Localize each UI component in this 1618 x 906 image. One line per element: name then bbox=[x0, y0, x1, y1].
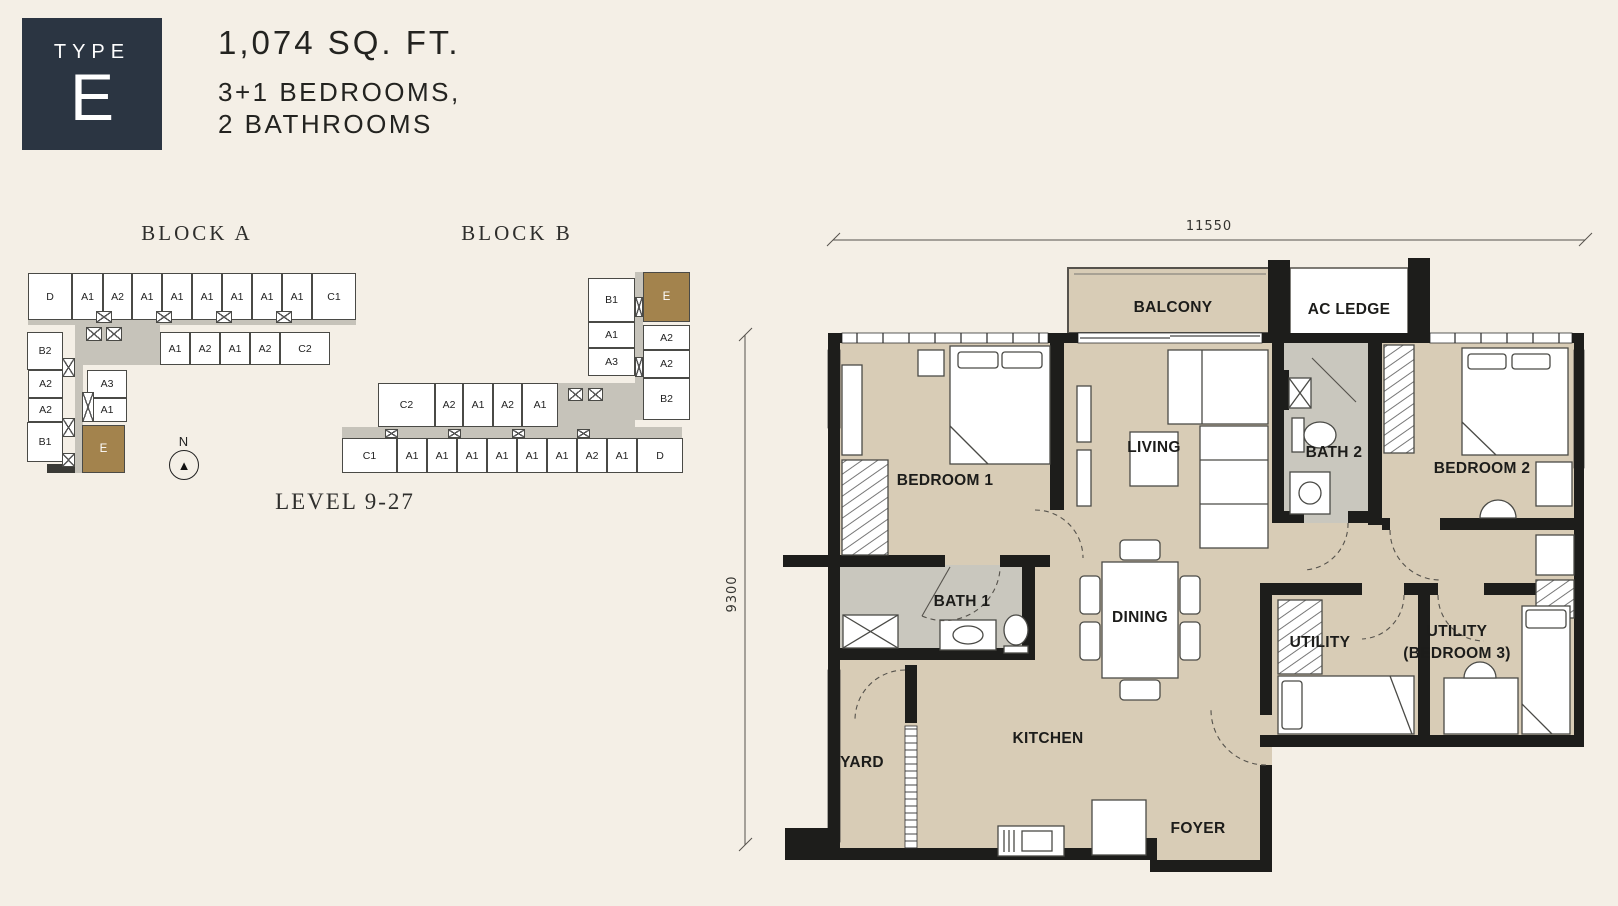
lift-shaft-icon bbox=[216, 311, 232, 323]
floor-plan: 11550 9300 BALCONY AC LEDGE LIVING BATH … bbox=[700, 210, 1618, 900]
unit-cell-b1: B1 bbox=[588, 278, 635, 322]
unit-cell-a1: A1 bbox=[220, 332, 250, 365]
unit-cell-d: D bbox=[637, 438, 683, 473]
lift-shaft-icon bbox=[62, 418, 75, 437]
unit-rooms: 3+1 BEDROOMS, 2 BATHROOMS bbox=[218, 76, 461, 140]
unit-cell-c2: C2 bbox=[378, 383, 435, 427]
label-ac-ledge: AC LEDGE bbox=[1308, 301, 1391, 318]
label-kitchen: KITCHEN bbox=[1013, 730, 1084, 747]
label-bath2: BATH 2 bbox=[1306, 444, 1363, 461]
unit-cell-a2: A2 bbox=[28, 370, 63, 398]
unit-cell-a1: A1 bbox=[457, 438, 487, 473]
type-badge: TYPE E bbox=[22, 18, 162, 150]
label-balcony: BALCONY bbox=[1134, 299, 1213, 316]
unit-cell-a1: A1 bbox=[160, 332, 190, 365]
lift-shaft-icon bbox=[385, 429, 398, 438]
type-badge-letter: E bbox=[70, 66, 114, 128]
unit-cell-a1: A1 bbox=[607, 438, 637, 473]
lift-shaft-icon bbox=[448, 429, 461, 438]
unit-cell-a2: A2 bbox=[190, 332, 220, 365]
label-dining: DINING bbox=[1112, 609, 1168, 626]
lift-shaft-icon bbox=[512, 429, 525, 438]
unit-cell-e-highlight: E bbox=[82, 425, 125, 473]
level-label: LEVEL 9-27 bbox=[245, 489, 445, 515]
unit-cell-a2: A2 bbox=[577, 438, 607, 473]
unit-cell-a2: A2 bbox=[643, 350, 690, 378]
lift-shaft-icon bbox=[577, 429, 590, 438]
unit-cell-d: D bbox=[28, 273, 72, 320]
dim-height-label: 9300 bbox=[725, 575, 740, 612]
unit-cell-a1: A1 bbox=[427, 438, 457, 473]
north-label: N bbox=[166, 434, 202, 449]
unit-cell-e-highlight: E bbox=[643, 272, 690, 322]
label-utility3-line1: UTILITY bbox=[1427, 623, 1488, 640]
label-yard: YARD bbox=[840, 754, 884, 771]
unit-bedrooms: 3+1 BEDROOMS, bbox=[218, 76, 461, 108]
lift-shaft-icon bbox=[276, 311, 292, 323]
floorplan-sheet: { "header": { "type_label": "TYPE", "typ… bbox=[0, 0, 1618, 906]
lift-shaft-icon bbox=[62, 453, 75, 467]
unit-cell-a2: A2 bbox=[643, 325, 690, 350]
label-utility3-line2: (BEDROOM 3) bbox=[1403, 645, 1511, 662]
unit-cell-a1: A1 bbox=[463, 383, 493, 427]
label-bedroom1: BEDROOM 1 bbox=[897, 472, 994, 489]
lift-shaft-icon bbox=[156, 311, 172, 323]
unit-cell-a1: A1 bbox=[487, 438, 517, 473]
unit-cell-b2: B2 bbox=[643, 378, 690, 420]
lift-shaft-icon bbox=[86, 327, 102, 341]
lift-shaft-icon bbox=[588, 388, 603, 401]
unit-bathrooms: 2 BATHROOMS bbox=[218, 108, 461, 140]
label-living: LIVING bbox=[1127, 439, 1180, 456]
block-a-title: BLOCK A bbox=[97, 221, 297, 246]
block-b-title: BLOCK B bbox=[417, 221, 617, 246]
label-foyer: FOYER bbox=[1171, 820, 1226, 837]
lift-shaft-icon bbox=[635, 357, 643, 377]
label-bath1: BATH 1 bbox=[934, 593, 991, 610]
block-b-plan: B1EA1A2A3A2B2C2A2A1A2A1C1A1A1A1A1A1A1A2A… bbox=[330, 252, 702, 478]
label-utility: UTILITY bbox=[1290, 634, 1351, 651]
unit-cell-a2: A2 bbox=[435, 383, 463, 427]
unit-cell-a2: A2 bbox=[28, 398, 63, 422]
lift-shaft-icon bbox=[568, 388, 583, 401]
lift-shaft-icon bbox=[82, 392, 94, 422]
unit-cell-a2: A2 bbox=[493, 383, 522, 427]
unit-cell-a3: A3 bbox=[588, 348, 635, 376]
unit-area: 1,074 SQ. FT. bbox=[218, 24, 461, 62]
lift-shaft-icon bbox=[635, 297, 643, 317]
lift-shaft-icon bbox=[62, 358, 75, 377]
unit-cell-a1: A1 bbox=[517, 438, 547, 473]
lift-shaft-icon bbox=[96, 311, 112, 323]
yard-glass-panel bbox=[905, 726, 917, 848]
dim-width-label: 11550 bbox=[1186, 219, 1232, 234]
unit-cell-a1: A1 bbox=[588, 322, 635, 348]
unit-cell-b2: B2 bbox=[27, 332, 63, 370]
unit-cell-a2: A2 bbox=[250, 332, 280, 365]
unit-cell-c1: C1 bbox=[342, 438, 397, 473]
corridor bbox=[635, 272, 643, 420]
unit-cell-a1: A1 bbox=[522, 383, 558, 427]
unit-cell-a1: A1 bbox=[547, 438, 577, 473]
unit-cell-a1: A1 bbox=[397, 438, 427, 473]
unit-cell-c2: C2 bbox=[280, 332, 330, 365]
north-compass: N ▲ bbox=[166, 434, 202, 480]
north-arrow-icon: ▲ bbox=[169, 450, 199, 480]
unit-cell-b1: B1 bbox=[27, 422, 63, 462]
label-bedroom2: BEDROOM 2 bbox=[1434, 460, 1531, 477]
lift-shaft-icon bbox=[106, 327, 122, 341]
